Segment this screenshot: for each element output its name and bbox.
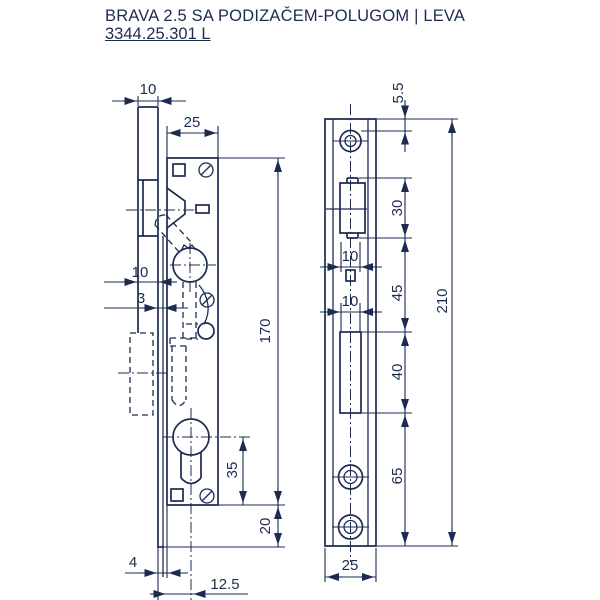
technical-drawing: BRAVA 2.5 SA PODIZAČEM-POLUGOM | LEVA 33… bbox=[0, 0, 600, 600]
svg-text:3: 3 bbox=[137, 290, 145, 307]
hidden-mechanism bbox=[130, 215, 198, 415]
dim-cutout-width-upper: 10 bbox=[320, 248, 382, 267]
svg-text:25: 25 bbox=[342, 557, 359, 574]
svg-text:12.5: 12.5 bbox=[210, 576, 239, 593]
dim-latch-cutout: 30 bbox=[389, 178, 406, 238]
dim-case-depth: 25 bbox=[167, 114, 218, 158]
svg-text:30: 30 bbox=[389, 200, 406, 217]
dim-cylinder-to-bottom: 35 bbox=[224, 437, 243, 505]
dim-hook-cutout: 40 bbox=[389, 332, 406, 413]
svg-text:10: 10 bbox=[342, 248, 359, 265]
dim-case-length: 170 bbox=[218, 158, 285, 505]
svg-text:5.5: 5.5 bbox=[390, 83, 407, 104]
svg-text:45: 45 bbox=[389, 285, 406, 302]
dim-backset: 12.5 bbox=[150, 576, 248, 594]
svg-text:10: 10 bbox=[132, 264, 149, 281]
dim-edge-gap: 4 bbox=[125, 554, 188, 573]
front-view: 5.5 30 45 40 bbox=[320, 83, 458, 582]
latch-opening bbox=[138, 180, 158, 236]
dim-total-length: 210 bbox=[434, 119, 452, 546]
svg-text:40: 40 bbox=[389, 364, 406, 381]
lever-roller bbox=[198, 323, 214, 339]
latch-cutout bbox=[326, 178, 367, 238]
svg-text:25: 25 bbox=[184, 114, 201, 131]
svg-text:170: 170 bbox=[257, 318, 274, 343]
svg-text:10: 10 bbox=[140, 81, 157, 98]
dim-upper-spacing: 45 bbox=[389, 238, 406, 332]
square-hole-top bbox=[173, 164, 185, 176]
dim-bottom-section: 65 bbox=[389, 413, 406, 546]
lever-curve bbox=[199, 285, 208, 324]
front-extension-lines bbox=[325, 119, 458, 582]
dim-cutout-width-lower: 10 bbox=[320, 293, 382, 312]
svg-text:210: 210 bbox=[434, 288, 451, 313]
svg-text:20: 20 bbox=[257, 518, 274, 535]
dim-faceplate-width: 10 bbox=[112, 81, 186, 106]
svg-text:10: 10 bbox=[342, 293, 359, 310]
svg-text:4: 4 bbox=[129, 554, 137, 571]
drawing-canvas: 10 25 170 20 bbox=[0, 0, 600, 600]
stop-plate bbox=[196, 205, 209, 213]
side-view: 10 25 170 20 bbox=[104, 81, 285, 600]
faceplate-outline bbox=[138, 107, 158, 547]
dim-plate-below-case: 20 bbox=[257, 505, 278, 547]
square-hole-bottom bbox=[171, 489, 183, 501]
dim-end-to-hole: 5.5 bbox=[390, 83, 407, 152]
latch-bolt bbox=[167, 188, 185, 228]
dim-plate-width: 25 bbox=[325, 557, 376, 577]
dim-mid-width: 10 bbox=[104, 264, 177, 290]
svg-text:65: 65 bbox=[389, 468, 406, 485]
svg-text:35: 35 bbox=[224, 462, 241, 479]
dim-plate-thickness: 3 bbox=[104, 290, 188, 308]
